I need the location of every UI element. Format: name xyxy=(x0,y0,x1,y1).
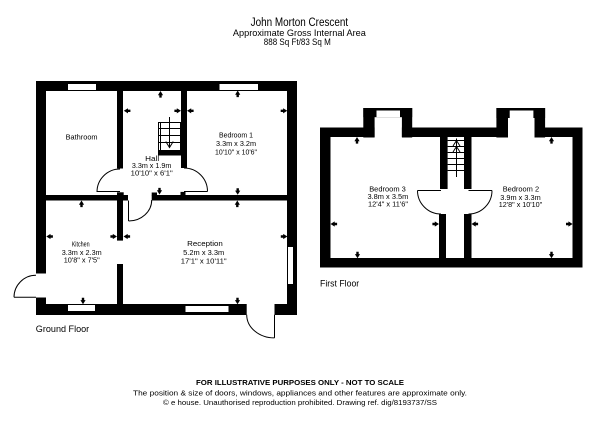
svg-text:Bathroom: Bathroom xyxy=(66,133,98,142)
svg-text:First Floor: First Floor xyxy=(320,279,359,290)
svg-text:10'10" x 6'1": 10'10" x 6'1" xyxy=(131,169,173,178)
svg-text:17'1" x 10'11": 17'1" x 10'11" xyxy=(181,257,227,266)
svg-text:Kitchen: Kitchen xyxy=(72,239,90,248)
svg-text:888 Sq Ft/83 Sq M: 888 Sq Ft/83 Sq M xyxy=(264,37,331,48)
svg-text:© e house. Unauthorised reprod: © e house. Unauthorised reproduction pro… xyxy=(163,398,437,407)
svg-text:5.2m x 3.3m: 5.2m x 3.3m xyxy=(183,248,224,257)
svg-text:10'10" x 10'6": 10'10" x 10'6" xyxy=(215,147,257,156)
svg-text:12'8" x 10'10": 12'8" x 10'10" xyxy=(499,200,543,209)
svg-text:Ground Floor: Ground Floor xyxy=(36,324,89,335)
svg-text:FOR ILLUSTRATIVE PURPOSES ONLY: FOR ILLUSTRATIVE PURPOSES ONLY - NOT TO … xyxy=(196,378,404,387)
svg-text:Reception: Reception xyxy=(187,239,223,248)
svg-text:10'8" x 7'5": 10'8" x 7'5" xyxy=(64,255,100,264)
svg-text:The position & size of doors,: The position & size of doors, windows, a… xyxy=(133,388,467,397)
svg-text:12'4" x 11'6": 12'4" x 11'6" xyxy=(368,200,408,209)
